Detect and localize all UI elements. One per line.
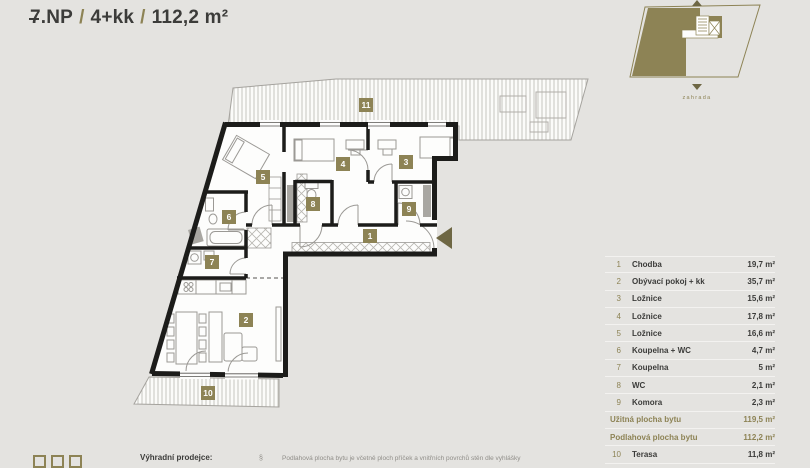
legend-room-number: 5 xyxy=(605,329,621,338)
summary-label: Užitná plocha bytu xyxy=(610,415,743,424)
paragraph-mark: § xyxy=(259,455,263,462)
legend-room-area: 11,8 m² xyxy=(748,450,775,459)
legend-room-area: 2,3 m² xyxy=(752,398,775,407)
title-floor-suffix: .NP xyxy=(41,7,73,28)
legend-row-6: 6 Koupelna + WC 4,7 m² xyxy=(605,342,775,359)
room-badge-7: 7 xyxy=(205,255,219,269)
legend-room-number: 3 xyxy=(605,294,621,303)
seller-logo xyxy=(33,455,82,468)
tv-cabinet xyxy=(276,307,281,361)
legend-room-label: Ložnice xyxy=(632,329,747,338)
legend-room-label: Chodba xyxy=(632,260,747,269)
legend-room-number: 6 xyxy=(605,346,621,355)
logo-square-3 xyxy=(69,455,82,468)
legend-room-area: 2,1 m² xyxy=(752,381,775,390)
closet-shelving xyxy=(269,177,281,221)
legend-room-label: Obývací pokoj + kk xyxy=(632,277,747,286)
floor-area-disclaimer: Podlahová plocha bytu je včetně ploch př… xyxy=(282,455,622,462)
legend-room-number: 7 xyxy=(605,363,621,372)
logo-square-2 xyxy=(51,455,64,468)
legend-row-7: 7 Koupelna 5 m² xyxy=(605,360,775,377)
room-legend-table: 1 Chodba 19,7 m² 2 Obývací pokoj + kk 35… xyxy=(605,256,775,464)
minimap-garden-label: zahrada xyxy=(683,95,712,101)
title-divider-1: / xyxy=(73,7,90,28)
legend-row-2: 2 Obývací pokoj + kk 35,7 m² xyxy=(605,273,775,290)
room-badge-11: 11 xyxy=(359,98,373,112)
title-floor-number: 7 xyxy=(30,7,41,29)
title-divider-2: / xyxy=(134,7,151,28)
legend-row-10-terasa: 10 Terasa 11,8 m² xyxy=(605,446,775,463)
room-badge-2: 2 xyxy=(239,313,253,327)
room-badge-4: 4 xyxy=(336,157,350,171)
summary-label: Podlahová plocha bytu xyxy=(610,433,743,442)
legend-room-area: 4,7 m² xyxy=(752,346,775,355)
legend-room-number: 4 xyxy=(605,312,621,321)
legend-summary-floor-area: Podlahová plocha bytu 112,2 m² xyxy=(605,429,775,446)
legend-room-label: Ložnice xyxy=(632,312,747,321)
minimap-arrow-down-icon xyxy=(692,84,702,90)
legend-row-5: 5 Ložnice 16,6 m² xyxy=(605,325,775,342)
legend-room-label: Koupelna + WC xyxy=(632,346,752,355)
kitchen-counter xyxy=(178,280,246,294)
summary-area: 112,2 m² xyxy=(743,433,775,442)
minimap: zahrada xyxy=(630,0,760,101)
legend-row-8: 8 WC 2,1 m² xyxy=(605,377,775,394)
room-badge-6: 6 xyxy=(222,210,236,224)
legend-room-label: Ložnice xyxy=(632,294,747,303)
title-area: 112,2 m² xyxy=(152,7,229,28)
legend-room-area: 17,8 m² xyxy=(747,312,775,321)
title-layout: 4+kk xyxy=(91,7,135,28)
legend-room-area: 5 m² xyxy=(759,363,775,372)
bed-room3 xyxy=(420,137,457,158)
legend-row-4: 4 Ložnice 17,8 m² xyxy=(605,308,775,325)
legend-room-number: 9 xyxy=(605,398,621,407)
room-badge-10: 10 xyxy=(201,386,215,400)
room-badge-9: 9 xyxy=(402,202,416,216)
summary-area: 119,5 m² xyxy=(743,415,775,424)
legend-row-3: 3 Ložnice 15,6 m² xyxy=(605,291,775,308)
room-badge-8: 8 xyxy=(306,197,320,211)
legend-summary-usable-area: Užitná plocha bytu 119,5 m² xyxy=(605,412,775,429)
legend-room-label: Terasa xyxy=(632,450,748,459)
legend-room-label: Komora xyxy=(632,398,752,407)
room-badge-5: 5 xyxy=(256,170,270,184)
minimap-stairs-icon xyxy=(696,16,709,35)
legend-room-area: 35,7 m² xyxy=(747,277,775,286)
logo-square-1 xyxy=(33,455,46,468)
legend-row-9: 9 Komora 2,3 m² xyxy=(605,394,775,411)
legend-room-area: 19,7 m² xyxy=(747,260,775,269)
legend-room-number: 8 xyxy=(605,381,621,390)
bed-room4 xyxy=(294,139,334,161)
washer-room9 xyxy=(399,186,412,199)
page-title: 7.NP/4+kk/112,2 m² xyxy=(30,7,228,29)
legend-room-area: 16,6 m² xyxy=(747,329,775,338)
seller-label: Výhradní prodejce: xyxy=(140,453,212,462)
room-badge-1: 1 xyxy=(363,229,377,243)
legend-row-1: 1 Chodba 19,7 m² xyxy=(605,256,775,273)
bathtub-room6 xyxy=(207,229,245,246)
entrance-arrow-icon xyxy=(436,227,452,249)
legend-room-area: 15,6 m² xyxy=(747,294,775,303)
minimap-arrow-up-icon xyxy=(692,0,702,6)
legend-room-label: Koupelna xyxy=(632,363,759,372)
minimap-elevator-icon xyxy=(709,21,720,35)
legend-room-label: WC xyxy=(632,381,752,390)
legend-room-number: 2 xyxy=(605,277,621,286)
room-badge-3: 3 xyxy=(399,155,413,169)
kitchen-island xyxy=(209,312,222,362)
legend-room-number: 1 xyxy=(605,260,621,269)
